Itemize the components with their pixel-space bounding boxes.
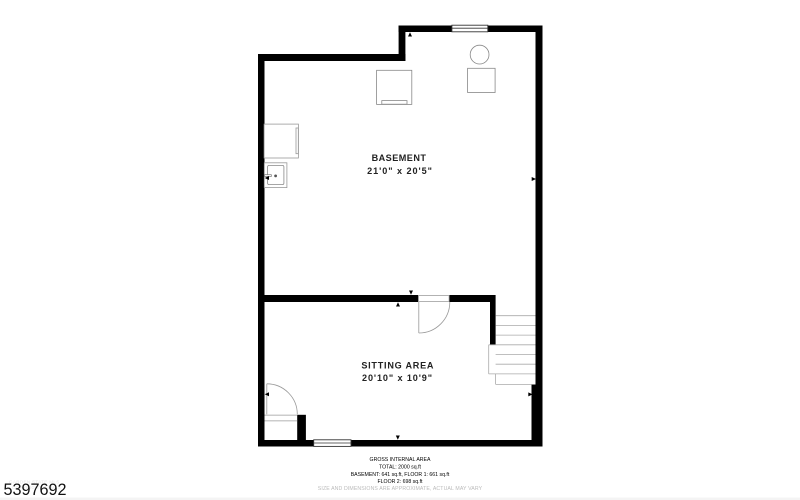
svg-text:21'0" x 20'5": 21'0" x 20'5"	[367, 166, 433, 176]
svg-text:GROSS INTERNAL AREA: GROSS INTERNAL AREA	[370, 457, 431, 463]
svg-text:5397692: 5397692	[4, 481, 67, 499]
svg-text:20'10" x 10'9": 20'10" x 10'9"	[362, 373, 433, 383]
svg-text:BASEMENT: BASEMENT	[372, 153, 427, 163]
svg-text:SITTING AREA: SITTING AREA	[361, 360, 434, 370]
svg-text:BASEMENT: 641 sq.ft, FLOOR 1:: BASEMENT: 641 sq.ft, FLOOR 1: 661 sq.ft	[351, 472, 450, 478]
svg-text:FLOOR 2: 698 sq.ft: FLOOR 2: 698 sq.ft	[378, 479, 424, 485]
svg-text:SIZE AND DIMENSIONS ARE APPROX: SIZE AND DIMENSIONS ARE APPROXIMATE, ACT…	[318, 486, 483, 492]
svg-text:TOTAL: 2000 sq.ft: TOTAL: 2000 sq.ft	[379, 465, 421, 471]
